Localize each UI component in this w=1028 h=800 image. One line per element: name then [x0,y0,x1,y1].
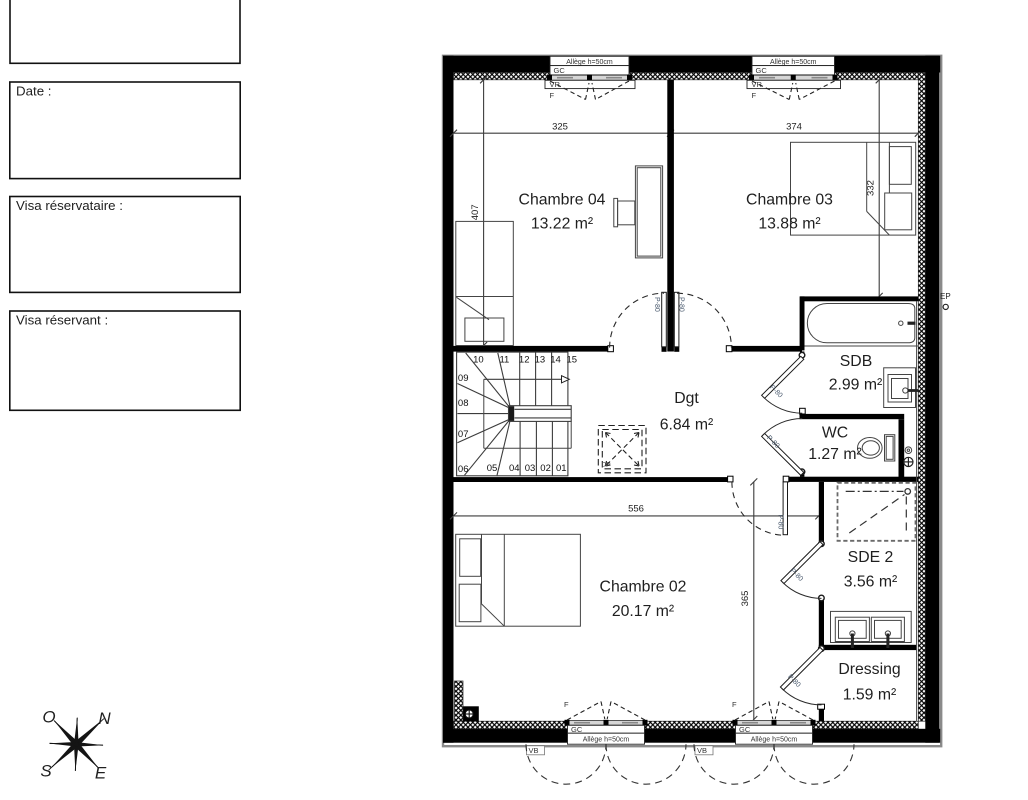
svg-text:Visa réservataire :: Visa réservataire : [16,198,123,213]
svg-text:2.99 m²: 2.99 m² [829,376,883,393]
svg-text:F: F [752,91,757,100]
svg-text:01: 01 [556,463,567,474]
svg-text:SDB: SDB [840,353,872,370]
svg-text:F: F [550,91,555,100]
svg-text:Allège h=50cm: Allège h=50cm [751,737,798,744]
svg-text:08: 08 [458,398,469,409]
svg-text:EP: EP [940,292,951,301]
svg-text:Chambre 03: Chambre 03 [746,192,833,209]
svg-text:6.84 m²: 6.84 m² [660,417,714,434]
svg-text:GC: GC [571,725,583,734]
svg-text:03: 03 [525,463,536,474]
svg-text:20.17 m²: 20.17 m² [612,603,674,620]
svg-text:F: F [732,700,737,709]
svg-text:556: 556 [628,504,644,515]
svg-text:05: 05 [487,463,498,474]
svg-text:12: 12 [519,354,530,365]
svg-text:Dgt: Dgt [674,390,699,407]
svg-text:325: 325 [552,122,568,133]
svg-text:Allège h=50cm: Allège h=50cm [566,59,613,66]
svg-text:SDE 2: SDE 2 [848,549,894,566]
svg-text:GC: GC [739,725,751,734]
svg-text:Chambre 02: Chambre 02 [600,578,687,595]
svg-text:GC: GC [554,66,566,75]
svg-text:13.22 m²: 13.22 m² [531,216,593,233]
svg-text:VB: VB [529,746,539,755]
svg-text:365: 365 [740,591,751,607]
svg-text:Allège h=50cm: Allège h=50cm [583,737,630,744]
svg-text:13: 13 [535,354,546,365]
svg-text:Date :: Date : [16,84,51,99]
svg-text:09: 09 [458,373,469,384]
svg-text:1.27 m²: 1.27 m² [808,446,862,463]
svg-text:P-80: P-80 [777,515,784,530]
svg-text:F: F [564,700,569,709]
svg-text:07: 07 [458,429,469,440]
svg-text:02: 02 [540,463,551,474]
svg-text:14: 14 [550,354,561,365]
svg-text:Allège h=50cm: Allège h=50cm [770,59,817,66]
svg-text:O: O [42,708,55,727]
svg-text:S: S [40,762,52,781]
svg-text:06: 06 [458,464,469,475]
svg-text:E: E [95,764,107,783]
svg-text:3.56 m²: 3.56 m² [844,573,898,590]
svg-text:332: 332 [866,180,877,196]
svg-text:VB: VB [697,746,707,755]
svg-text:GC: GC [756,66,768,75]
svg-text:10: 10 [473,354,484,365]
svg-text:DP: DP [602,462,611,469]
svg-text:P-80: P-80 [653,297,660,312]
svg-text:Visa réservant :: Visa réservant : [16,313,108,328]
svg-text:407: 407 [470,204,481,220]
svg-text:P-80: P-80 [678,297,685,312]
svg-text:13.88 m²: 13.88 m² [758,216,820,233]
svg-text:Dressing: Dressing [838,661,900,678]
svg-text:1.59 m²: 1.59 m² [843,686,897,703]
svg-text:Chambre 04: Chambre 04 [519,192,606,209]
svg-text:WC: WC [822,424,848,441]
svg-text:04: 04 [509,463,520,474]
svg-text:15: 15 [567,354,578,365]
svg-text:N: N [98,709,111,728]
svg-text:11: 11 [499,354,509,365]
svg-text:374: 374 [786,122,802,133]
